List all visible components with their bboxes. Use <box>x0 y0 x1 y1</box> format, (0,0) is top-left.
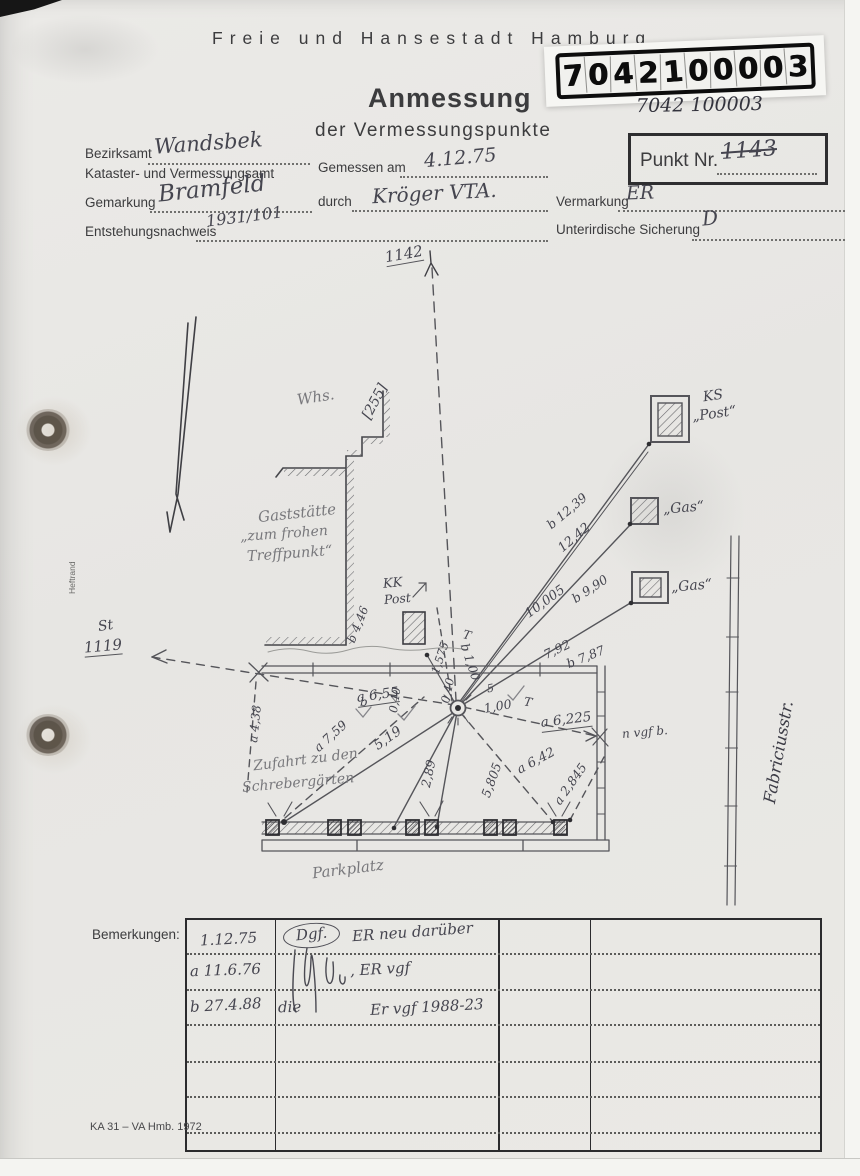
remark-row-note: , ER vgf <box>350 960 411 978</box>
sketch-label-kk: KK <box>382 576 402 591</box>
table-row-line <box>187 1061 820 1063</box>
remark-row-date: 1.12.75 <box>200 931 258 949</box>
remark-row-note: die <box>278 1000 302 1016</box>
table-row-line <box>187 1096 820 1098</box>
bemerkungen-label: Bemerkungen: <box>92 928 180 942</box>
bemerkungen-table <box>185 918 822 1152</box>
sketch-label-gas: „Gas“ <box>670 577 712 595</box>
remark-row-date: b 27.4.88 <box>190 996 262 1015</box>
letter-b-mark: b <box>360 696 368 708</box>
form-code: KA 31 – VA Hmb. 1972 <box>90 1122 202 1133</box>
table-row-line <box>187 989 820 991</box>
scanned-survey-form: Freie und Hansestadt Hamburg 7 0 4 2 1 0… <box>0 0 860 1176</box>
measurement-a-4-38: a 4,38 <box>247 705 263 744</box>
remark-row-date: a 11.6.76 <box>190 962 261 979</box>
sketch-label-st: St <box>97 618 114 634</box>
table-row-line <box>187 1132 820 1134</box>
sketch-label-ks: KS <box>702 388 724 405</box>
sketch-label-gas: „Gas“ <box>662 499 704 517</box>
sketch-label-n-vgf-b: n vgf b. <box>622 724 669 740</box>
table-row-line <box>187 1024 820 1026</box>
sketch-label-kk-post: Post <box>384 592 412 607</box>
sketch-label-st-1119: 1119 <box>83 637 123 657</box>
table-row-line <box>187 953 820 955</box>
